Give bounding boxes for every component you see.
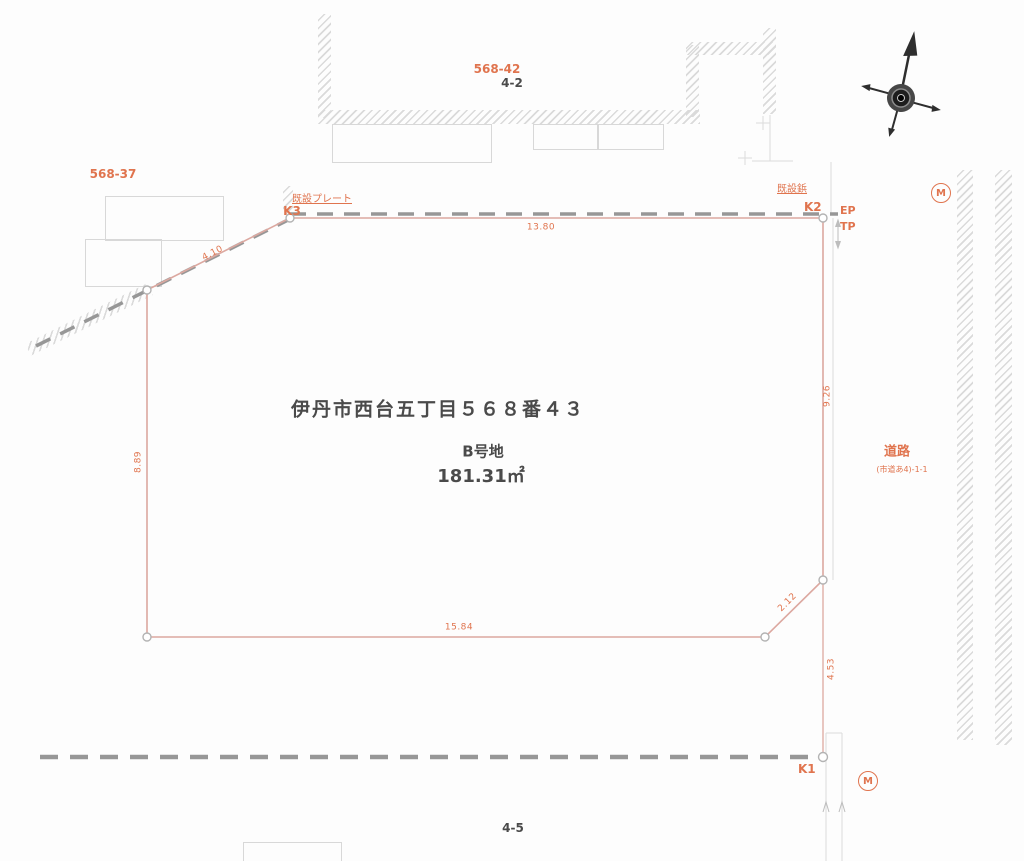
survey-point-markers (143, 214, 828, 762)
point-label-tp: TP (840, 221, 856, 232)
benchmark-m-top-label: M (936, 188, 946, 199)
tick-arrows (823, 220, 845, 812)
parcel-address: 伊丹市西台五丁目５６８番４３ (291, 401, 585, 420)
parcel-area: 181.31㎡ (437, 468, 524, 486)
road-sublabel: (市道あ4)-1-1 (876, 466, 927, 474)
road-label: 道路 (884, 446, 910, 459)
parcel-label-568-37: 568-37 (90, 168, 137, 180)
dimension-right: 9.26 (824, 385, 833, 407)
dimension-bottom: 15.84 (445, 624, 473, 633)
existing-pin-note: 既設鋲 (777, 185, 807, 195)
survey-map: 568-42 4-2 568-37 4-5 既設プレート K3 既設鋲 K2 E… (0, 0, 1024, 861)
dimension-left: 8.89 (135, 451, 144, 473)
construction-lines (738, 115, 842, 861)
benchmark-m-bottom-label: M (863, 776, 873, 787)
parcel-label-4-2: 4-2 (501, 77, 523, 89)
point-label-k3: K3 (283, 205, 301, 217)
dimension-right-lower: 4.53 (828, 658, 837, 680)
parcel-boundary (147, 218, 823, 637)
parcel-label-568-42: 568-42 (474, 63, 521, 75)
point-label-ep: EP (840, 205, 856, 216)
parcel-lot-name: B号地 (462, 445, 503, 460)
existing-plate-note: 既設プレート (292, 195, 352, 205)
north-arrow-icon (855, 26, 950, 143)
dimension-top: 13.80 (527, 224, 555, 233)
parcel-label-4-5: 4-5 (502, 822, 524, 834)
point-label-k2: K2 (804, 201, 822, 213)
point-label-k1: K1 (798, 763, 816, 775)
benchmark-m-top: M (931, 183, 951, 203)
benchmark-m-bottom: M (858, 771, 878, 791)
linework-layer (0, 0, 1024, 861)
